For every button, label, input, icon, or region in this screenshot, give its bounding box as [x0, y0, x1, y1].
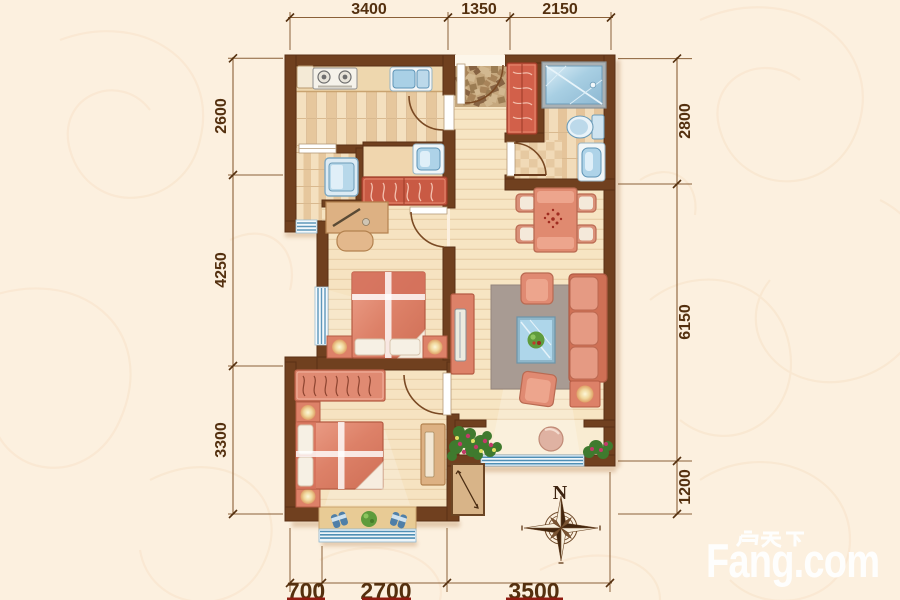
svg-text:2600: 2600 [213, 98, 230, 134]
svg-text:6150: 6150 [677, 304, 694, 340]
svg-text:N: N [553, 482, 568, 504]
svg-text:2700: 2700 [360, 578, 411, 600]
svg-text:2800: 2800 [677, 103, 694, 139]
svg-text:Fang.com: Fang.com [706, 535, 879, 588]
svg-text:4250: 4250 [213, 252, 230, 288]
svg-text:3300: 3300 [213, 422, 230, 458]
svg-text:1200: 1200 [677, 469, 694, 505]
svg-text:700: 700 [287, 578, 325, 600]
svg-text:3400: 3400 [351, 1, 387, 18]
svg-text:2150: 2150 [542, 1, 578, 18]
svg-text:1350: 1350 [461, 1, 497, 18]
svg-text:3500: 3500 [508, 578, 559, 600]
